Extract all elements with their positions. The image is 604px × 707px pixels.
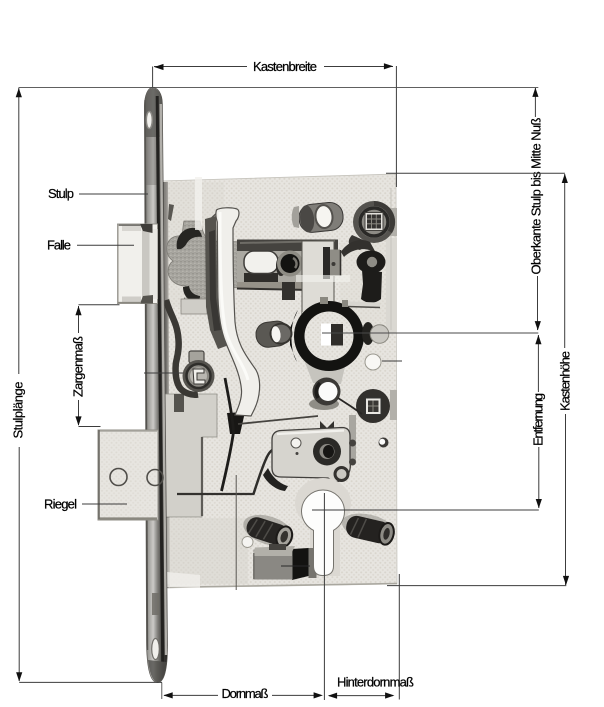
svg-text:Stulplänge: Stulplänge	[11, 382, 26, 439]
svg-text:Zargenmaß: Zargenmaß	[71, 336, 86, 397]
svg-text:Kastenbreite: Kastenbreite	[253, 59, 317, 74]
svg-text:Falle: Falle	[47, 238, 71, 253]
svg-text:Stulp: Stulp	[48, 186, 74, 201]
svg-text:Oberkante Stulp bis Mitte Nuß: Oberkante Stulp bis Mitte Nuß	[529, 117, 544, 274]
svg-text:Hinterdornmaß: Hinterdornmaß	[337, 675, 414, 690]
svg-text:Riegel: Riegel	[44, 497, 77, 512]
svg-text:Kastenhöhe: Kastenhöhe	[558, 351, 573, 411]
svg-text:Dornmaß: Dornmaß	[222, 686, 269, 701]
svg-text:Entfernung: Entfernung	[530, 393, 545, 446]
